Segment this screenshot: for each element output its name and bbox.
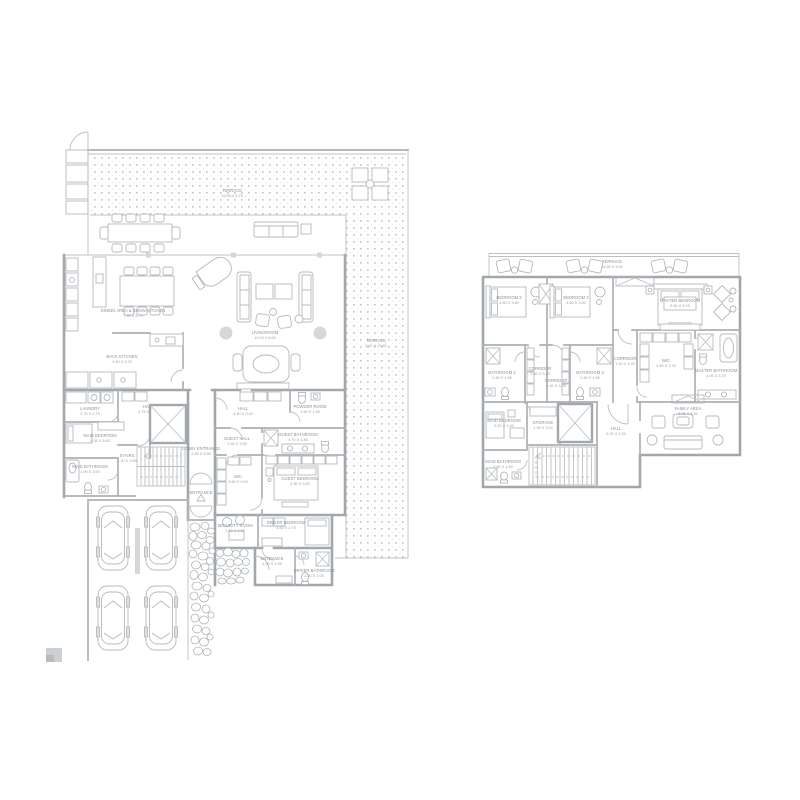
dim-bedroom2: 4.60 X 3.60 [499,301,518,305]
dining-show-kitchen: DINING AREA & SHOW KITCHEN 7.80 X 5.75 [66,253,236,331]
label-driver-bedroom: DRIVER BEDROOM [267,520,306,525]
dim-corridor-a: 1.40 X 3.05 [530,372,549,376]
dim-driver-bathroom: 1.50 X 2.05 [304,574,323,578]
entrance-arrow-icon [197,495,205,502]
dim-master-bathroom: 3.05 X 3.70 [706,374,725,378]
dim-guest-bedroom: 4.90 X 3.60 [290,482,309,486]
outdoor-sofa [254,222,311,237]
ground-floor-plan: TERRACE 19.05 X 3.75 TERRACE 3.60 X 19.6… [64,132,408,660]
dim-bathroom2: 2.60 X 1.85 [492,376,511,380]
car-icon [97,506,130,570]
dim-upper-terrace: 16.60 X 3.00 [601,265,623,269]
label-guest-bedroom: GUEST BEDROOM [281,476,319,481]
lounge-chairs [496,259,533,274]
dim-maid-bedroom: 3.35 X 3.60 [90,439,109,443]
elevator [150,405,186,443]
bedroom2: BEDROOM 2 4.60 X 3.60 [486,284,553,318]
dim-corridor-c: 1.40 X 4.20 [615,362,634,366]
upper-stairs [529,447,595,485]
label-dining: DINING AREA & SHOW KITCHEN [101,308,165,313]
driver-bedroom: DRIVER BEDROOM 3.60 X 2.75 [262,518,329,546]
label-storage: STORAGE [533,420,554,425]
terrace-door [70,132,88,150]
grand-piano [190,253,235,294]
car-icon [97,586,130,650]
label-laundry: LAUNDRY [80,406,100,411]
floor-planter [314,327,327,340]
guest-wic: WIC 3.60 X 3.60 [217,457,251,505]
label-corridor-a: CORRIDOR [529,366,552,371]
label-security-room: SECURITY ROOM [217,523,253,528]
dim-livingroom: 10.05 X 8.60 [254,336,276,340]
dim-terrace-top: 19.05 X 3.75 [221,194,243,198]
dim-storage: 1.90 X 3.00 [533,426,552,430]
maid-bedroom: MAID BEDROOM 3.35 X 3.60 [66,422,124,443]
label-guest-hall: GUEST HALL [224,436,251,441]
label-corridor-c: CORRIDOR [614,356,637,361]
kitchen-island [93,257,106,307]
upper-elevator [558,404,592,442]
dim-staff-entrance: 2.40 X 1.95 [262,562,281,566]
dim-master-wic: 4.60 X 3.70 [656,364,675,368]
label-bedroom2: BEDROOM 2 [496,295,522,300]
pebble-path [189,523,250,656]
master-bedroom: MASTER BEDROOM 6.60 X 5.25 [616,277,736,330]
dim-stairs: 1.20 X 3.60 [117,459,136,463]
guest-hall: GUEST HALL 2.60 X 2.55 [224,436,251,446]
dim-upper-maid-bathroom: 2.50 X 1.50 [493,465,512,469]
label-master-wic: WIC [662,358,670,363]
dim-guest-hall-upper: 4.60 X 3.40 [233,412,252,416]
floorplan-canvas: TERRACE 19.05 X 3.75 TERRACE 3.60 X 19.6… [0,0,800,800]
dim-upper-maid-bedroom: 3.50 X 3.00 [494,424,513,428]
upper-maid-bedroom: MAID BEDROOM 3.50 X 3.00 [486,410,524,438]
bathroom2: BATHROOM 2 2.60 X 1.85 [485,348,516,400]
dim-wic: 3.60 X 3.60 [228,480,247,484]
maid-bathroom: MAID BATHROOM 1.95 X 3.60 [66,460,108,494]
label-family-area: FAMILY AREA [675,406,702,411]
dim-laundry: 2.70 X 2.75 [80,412,99,416]
label-bathroom3: BATHROOM 3 [576,370,604,375]
label-corridor-b: CORRIDOR [545,378,568,383]
guest-bedroom: GUEST BEDROOM 4.90 X 3.60 [266,456,337,507]
dim-master-bedroom: 6.60 X 5.25 [670,304,689,308]
security-room: SECURITY ROOM 2.60 X 2.55 [217,516,253,541]
planter-boxes [66,150,88,214]
upper-floor-plan: TERRACE 16.60 X 3.00 [483,254,740,488]
label-master-bathroom: MASTER BATHROOM [695,368,738,373]
dim-terrace-right: 3.60 X 19.60 [365,344,387,348]
label-staff-entrance: ENTRANCE [260,556,283,561]
dim-maid-bathroom: 1.95 X 3.60 [80,470,99,474]
label-guest-bathroom: GUEST BATHROOM [278,432,318,437]
label-terrace-right: TERRACE [366,338,386,343]
outdoor-dining-set [100,214,180,252]
label-bedroom3: BEDROOM 3 [563,295,589,300]
floor-planter [220,327,233,340]
label-bathroom2: BATHROOM 2 [488,370,516,375]
service-rooms: LAUNDRY 2.70 X 2.75 HALL 4.75 X 3.75 MAI… [66,392,186,494]
dim-family-area: 5.25 X 3.30 [678,412,697,416]
label-upper-maid-bathroom: MAID BATHROOM [485,459,521,464]
upper-maid-bathroom: MAID BATHROOM 2.50 X 1.50 [485,459,521,483]
label-lobby-entrance: LOBBY ENTRANCE [182,446,220,451]
upper-terrace: TERRACE 16.60 X 3.00 [489,254,739,278]
car-icon [145,506,178,570]
bathroom3: BATHROOM 3 2.60 X 1.85 [576,348,611,400]
dim-security-room: 2.60 X 2.55 [225,529,244,533]
label-driver-bathroom: DRIVER BATHROOM [294,568,335,573]
guest-bathroom: GUEST BATHROOM 4.70 X 1.85 [264,430,329,453]
back-kitchen: BACK KITCHEN 3.60 X 3.75 [66,334,183,388]
family-area: FAMILY AREA 5.25 X 3.30 [647,395,723,449]
dim-guest-bathroom: 4.70 X 1.85 [288,438,307,442]
living-room: LIVINGROOM 10.05 X 8.60 [220,272,327,389]
garage [88,500,188,660]
label-wic: WIC [234,474,242,479]
dim-corridor-b: 1.40 X 3.05 [546,384,565,388]
corridor-c: CORRIDOR 1.40 X 4.20 [614,356,637,366]
label-livingroom: LIVINGROOM [252,330,279,335]
stairs: STAIRS 1.20 X 3.60 [117,447,185,486]
dim-dining: 7.80 X 5.75 [123,314,142,318]
logo-mark [46,648,62,662]
dim-guest-hall: 2.60 X 2.55 [227,442,246,446]
label-upper-terrace: TERRACE [602,259,622,264]
dim-bathroom3: 2.60 X 1.85 [580,376,599,380]
dim-back-kitchen: 3.60 X 3.75 [112,360,131,364]
label-maid-bathroom: MAID BATHROOM [72,464,108,469]
label-back-kitchen: BACK KITCHEN [107,354,138,359]
car-icon [145,586,178,650]
driver-bathroom: DRIVER BATHROOM 1.50 X 2.05 [294,552,335,585]
lounge-chairs [566,259,603,274]
label-stairs: STAIRS [120,453,135,458]
label-upper-hall: HALL [611,426,622,431]
dim-bedroom3: 4.60 X 3.60 [566,301,585,305]
tv-console [237,383,289,389]
dim-powder-room: 1.60 X 1.85 [300,410,319,414]
label-guest-hall-upper: HALL [238,406,249,411]
garage-divider [135,528,140,574]
label-terrace-top: TERRACE [222,188,242,193]
terrace-dotted-right [346,215,406,558]
master-wic: WIC 4.60 X 3.70 [640,333,693,382]
label-upper-maid-bedroom: MAID BEDROOM [487,418,521,423]
master-bathroom: MASTER BATHROOM 3.05 X 3.70 [695,334,738,399]
label-master-bedroom: MASTER BEDROOM [660,298,701,303]
dim-lobby-entrance: 2.95 X 5.85 [191,452,210,456]
laundry: LAUNDRY 2.70 X 2.75 [66,392,113,416]
bedroom3: BEDROOM 3 4.60 X 3.60 [550,286,605,318]
label-powder-room: POWDER ROOM [293,404,327,409]
game-table-set [233,346,300,382]
upper-hall: HALL 5.25 X 3.30 [606,426,625,436]
powder-room: POWDER ROOM 1.60 X 1.85 [293,393,327,415]
storage: STORAGE 1.90 X 3.00 [530,407,556,430]
guest-hall-upper: HALL 4.60 X 3.40 [233,392,281,416]
label-maid-bedroom: MAID BEDROOM [83,433,117,438]
guest-suite: HALL 4.60 X 3.40 POWDER ROOM 1.60 X 1.85… [217,392,337,507]
dim-upper-hall: 5.25 X 3.30 [606,432,625,436]
staff-entrance: ENTRANCE 2.40 X 1.95 [260,556,292,583]
lounge-chairs [651,259,688,274]
dim-driver-bedroom: 3.60 X 2.75 [276,526,295,530]
